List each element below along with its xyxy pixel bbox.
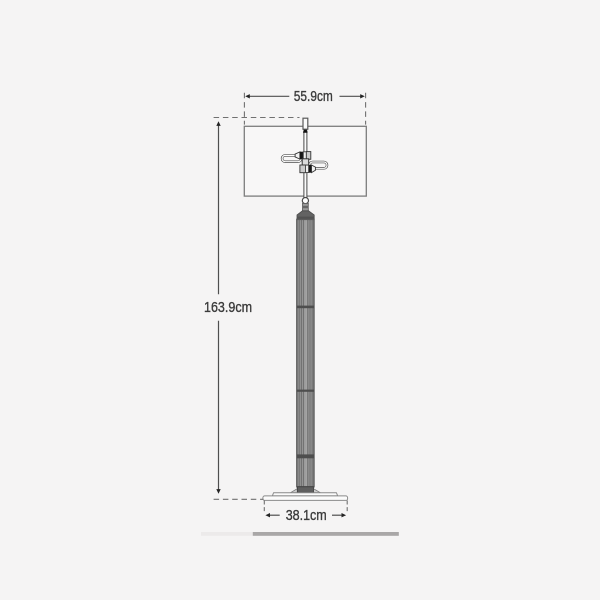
svg-text:38.1cm: 38.1cm [286,508,327,524]
svg-text:163.9cm: 163.9cm [204,300,252,316]
svg-text:55.9cm: 55.9cm [294,89,333,105]
